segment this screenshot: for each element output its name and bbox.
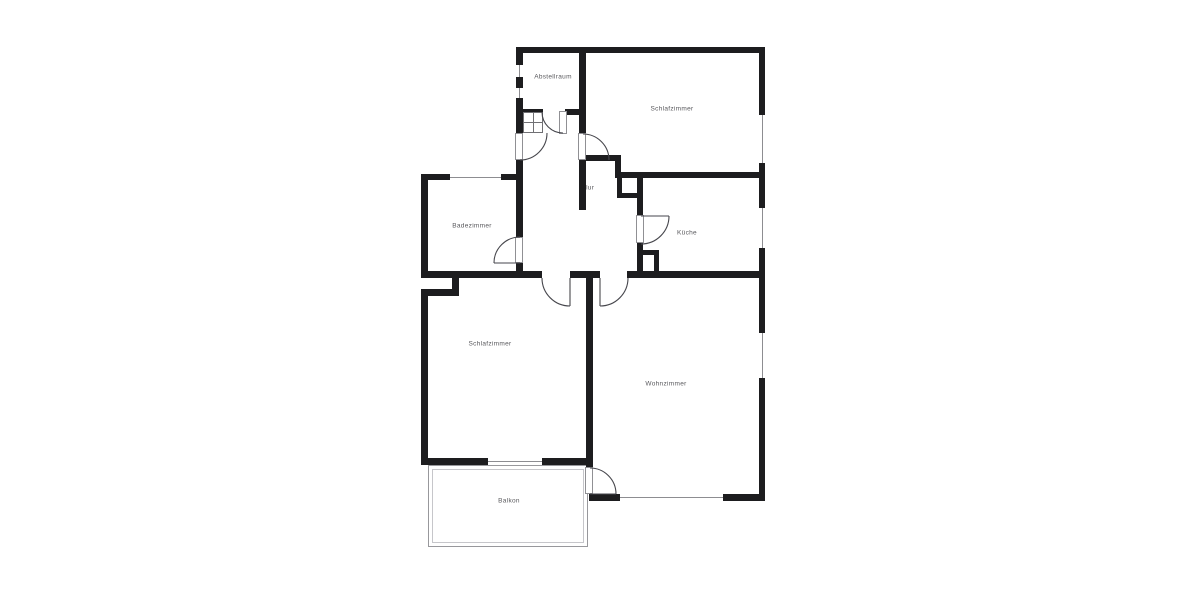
wall-segment xyxy=(654,250,659,278)
room-label-kueche: Küche xyxy=(677,230,697,237)
door-leaf xyxy=(515,237,523,263)
room-label-abstellraum: Abstellraum xyxy=(534,74,572,81)
door-leaf xyxy=(578,133,586,160)
wall-segment xyxy=(617,172,622,198)
wall-segment xyxy=(452,278,459,296)
floor-plan: Abstellraum Schlafzimmer Badezimmer Flur… xyxy=(0,0,1200,600)
wall-segment xyxy=(579,47,586,133)
window xyxy=(762,115,763,163)
wall-segment xyxy=(570,271,600,278)
door-arc-balkon xyxy=(590,468,616,494)
wall-segment xyxy=(421,458,488,465)
door-arc-schlafzimmer-bottom xyxy=(542,278,570,306)
wall-segment xyxy=(759,47,765,115)
wall-segment xyxy=(516,77,523,88)
window xyxy=(762,208,763,248)
door-leaf xyxy=(585,467,593,494)
window xyxy=(450,177,501,178)
room-label-balkon: Balkon xyxy=(498,498,520,505)
wall-segment xyxy=(637,172,643,215)
door-leaf xyxy=(515,133,523,160)
wall-segment xyxy=(759,378,765,501)
door-swings xyxy=(0,0,1200,600)
window xyxy=(519,88,520,98)
room-label-wohnzimmer: Wohnzimmer xyxy=(645,381,686,388)
wall-segment xyxy=(516,47,523,65)
window xyxy=(519,65,520,77)
wall-segment xyxy=(421,271,542,278)
room-label-schlafzimmer-bottom: Schlafzimmer xyxy=(469,341,512,348)
wall-segment xyxy=(627,271,765,278)
wall-segment xyxy=(586,271,593,467)
wall-segment xyxy=(589,494,620,501)
door-leaf xyxy=(636,215,644,243)
built-in-cupboard xyxy=(523,112,543,133)
wall-segment xyxy=(759,163,765,208)
wall-segment xyxy=(759,248,765,333)
room-label-badezimmer: Badezimmer xyxy=(452,223,491,230)
wall-segment xyxy=(516,159,523,237)
door-arc-wohnzimmer xyxy=(600,278,628,306)
wall-segment xyxy=(579,160,586,210)
window xyxy=(620,497,723,498)
wall-segment xyxy=(516,47,765,53)
wall-segment xyxy=(516,98,523,133)
wall-segment xyxy=(542,458,587,465)
room-label-schlafzimmer-top: Schlafzimmer xyxy=(651,106,694,113)
cupboard-divider xyxy=(524,122,542,123)
balcony-outline-inner xyxy=(432,469,584,543)
door-arc-entrance xyxy=(520,133,547,160)
window xyxy=(488,461,542,462)
door-arc-kueche xyxy=(641,216,669,244)
door-leaf xyxy=(559,111,567,134)
wall-segment xyxy=(637,243,643,278)
wall-segment xyxy=(421,174,428,278)
wall-segment xyxy=(421,296,428,458)
window xyxy=(762,333,763,378)
wall-segment xyxy=(516,263,523,278)
